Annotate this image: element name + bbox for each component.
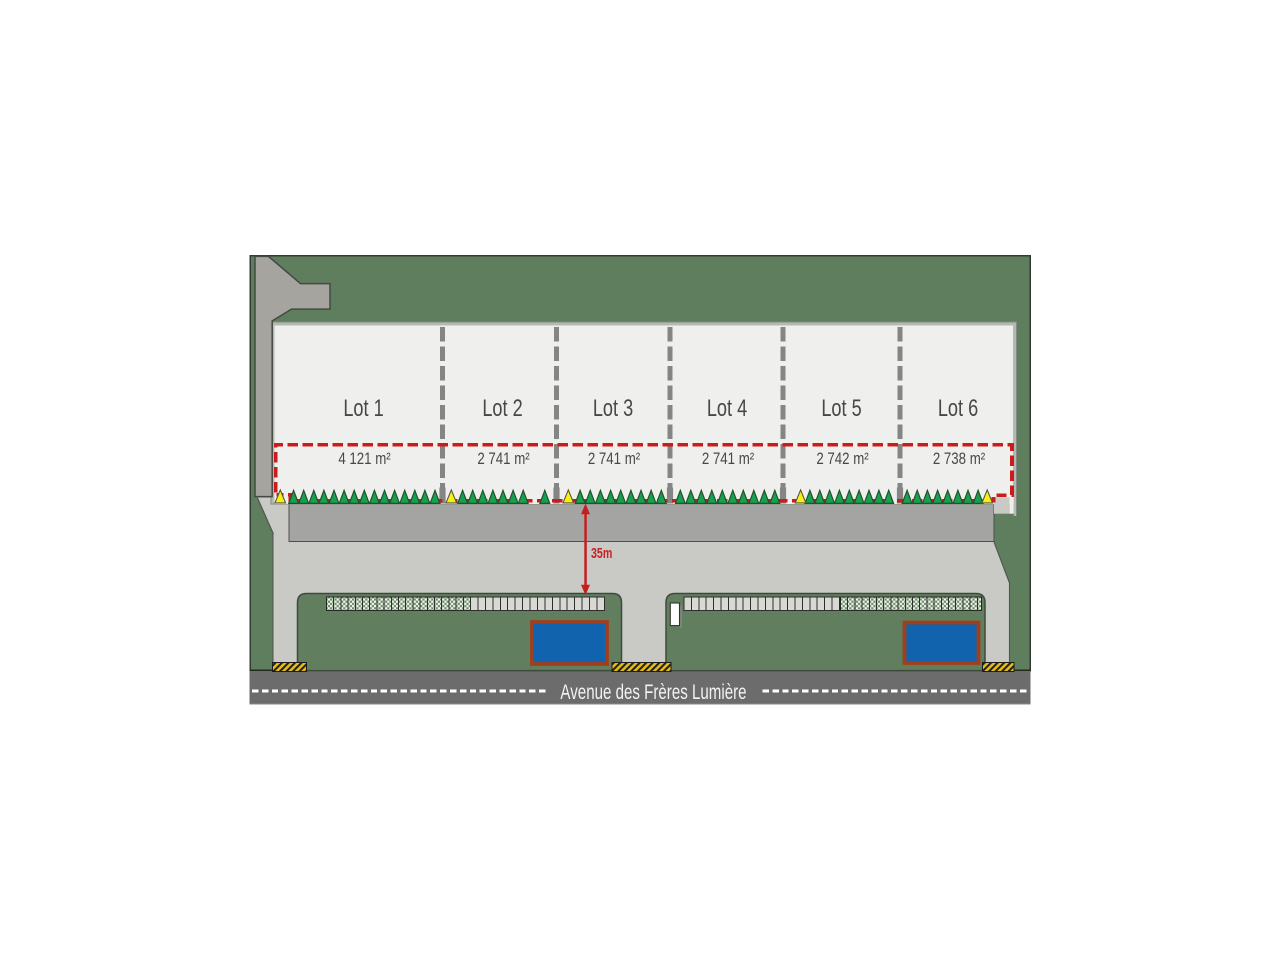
svg-text:Lot 2: Lot 2 bbox=[482, 395, 522, 422]
svg-text:35m: 35m bbox=[591, 544, 612, 561]
svg-text:2 741 m²: 2 741 m² bbox=[588, 451, 640, 468]
svg-text:2 742 m²: 2 742 m² bbox=[816, 451, 868, 468]
svg-text:2 738 m²: 2 738 m² bbox=[933, 451, 985, 468]
svg-text:Lot 6: Lot 6 bbox=[938, 395, 978, 422]
svg-text:Lot 4: Lot 4 bbox=[707, 395, 747, 422]
svg-text:2 741 m²: 2 741 m² bbox=[702, 451, 754, 468]
svg-text:Lot 1: Lot 1 bbox=[343, 395, 383, 422]
svg-text:Lot 5: Lot 5 bbox=[821, 395, 861, 422]
svg-text:Lot 3: Lot 3 bbox=[593, 395, 633, 422]
svg-text:4 121 m²: 4 121 m² bbox=[338, 451, 390, 468]
svg-text:2 741 m²: 2 741 m² bbox=[477, 451, 529, 468]
svg-text:Avenue des Frères Lumière: Avenue des Frères Lumière bbox=[560, 680, 746, 704]
